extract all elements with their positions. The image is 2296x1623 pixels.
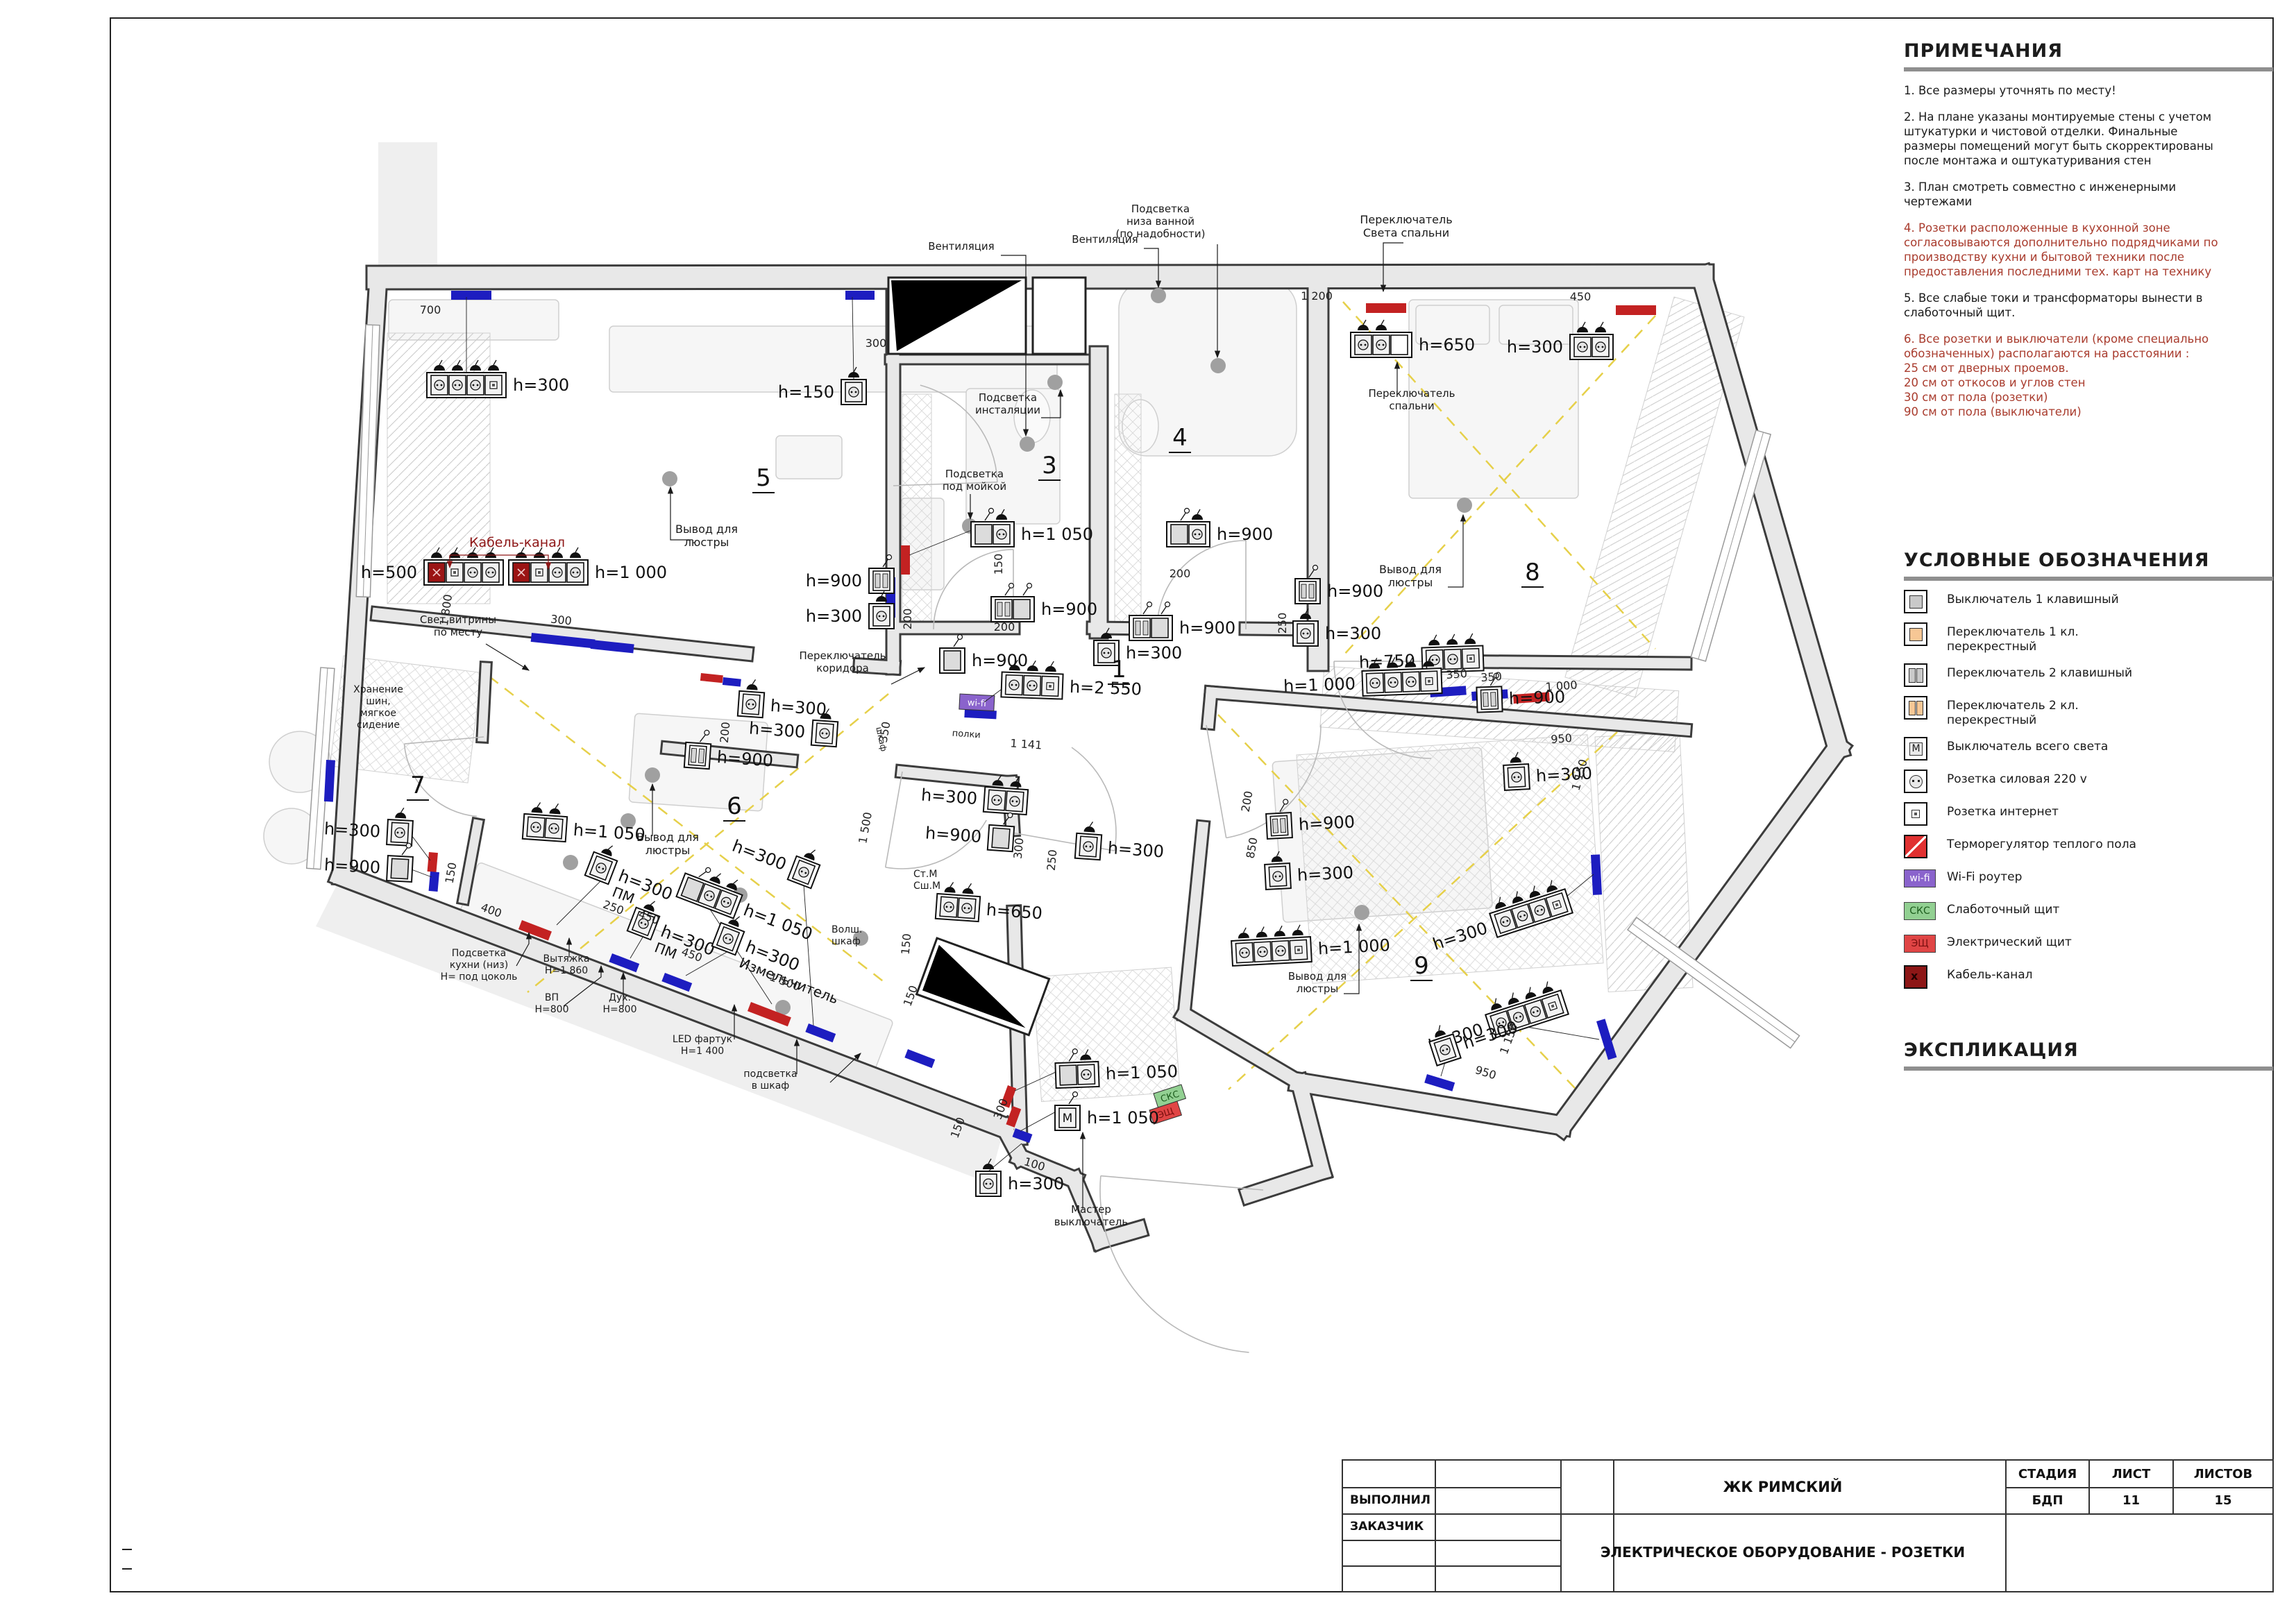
sheets-value: 15 [2174,1488,2272,1512]
customer-label: ЗАКАЗЧИК [1343,1515,1440,1538]
annotation: ВытяжкаН=1 860 [543,953,590,976]
dimension-label: 1 141 [1010,736,1043,751]
height-label: h=300 [1297,863,1353,885]
height-label: h=650 [1419,335,1475,355]
height-label: h=900 [1327,581,1383,601]
height-label: h=900 [716,747,774,771]
note-item: 4. Розетки расположенные в кухонной зоне… [1904,221,2273,279]
height-label: h=900 [1179,618,1235,638]
ceiling-outlet-dot [662,471,677,486]
legend-item: Переключатель 2 кл. перекрестный [1904,696,2273,728]
legend-item-label: Выключатель всего света [1947,737,2108,754]
height-label: h=300 [1126,643,1182,663]
explication-panel: ЭКСПЛИКАЦИЯ [1904,1039,2273,1071]
ceiling-outlet-dot [1047,375,1063,390]
height-label: h=300 [1325,624,1381,643]
svg-text:M: M [1063,1112,1073,1125]
explication-rule [1904,1067,2273,1071]
legend-item-label: Переключатель 2 кл. перекрестный [1947,696,2079,728]
svg-text:7: 7 [410,772,425,799]
socket-group: h=900 [991,584,1097,622]
note-item: 5. Все слабые токи и трансформаторы выне… [1904,291,2273,320]
height-label: h=300 [1507,337,1563,357]
socket-group: h=900 [806,555,894,594]
notes-panel: ПРИМЕЧАНИЯ 1. Все размеры уточнять по ме… [1904,40,2273,419]
svg-text:3: 3 [1042,452,1057,479]
exterior-zone [378,142,437,278]
legend-item: ЭЩЭлектрический щит [1904,933,2273,956]
exterior-zone [316,876,1004,1183]
sks-icon: СКС [1904,900,1927,924]
height-label: h=650 [986,900,1043,924]
power-strip [700,673,723,683]
annotation: Вентиляция [928,240,994,253]
dimension-label: 150 [899,933,914,955]
dimension-label: 450 [1570,290,1592,303]
cross1-icon [1904,622,1927,646]
dimension-label: 300 [550,612,572,627]
height-label: h=900 [323,855,380,877]
annotation: Вывод длялюстры [636,831,699,857]
title-block: ВЫПОЛНИЛ ЗАКАЗЧИК ЖК РИМСКИЙ ЭЛЕКТРИЧЕСК… [1342,1459,2274,1592]
esh-icon: ЭЩ [1904,933,1927,956]
height-label: h=900 [1298,812,1355,834]
sheet-label: ЛИСТ [2090,1461,2172,1487]
svg-text:6: 6 [727,792,742,820]
legend-item: СКССлаботочный щит [1904,900,2273,924]
cross2-icon [1904,696,1927,720]
ceiling-outlet-dot [645,767,660,783]
dimension-label: 150 [992,554,1005,575]
low-current-strip [845,291,875,300]
wifi-icon: wi-fi [1904,867,1927,891]
vent-shaft [1033,278,1086,354]
annotation: Подсветкапод мойкой [943,468,1006,493]
annotation: Кабель-канал [469,535,565,550]
height-label: h=1 050 [1087,1108,1159,1128]
annotation: Вывод длялюстры [675,522,738,549]
height-label: h=1 000 [595,563,667,582]
notes-title: ПРИМЕЧАНИЯ [1904,40,2273,62]
dimension-label: 950 [1474,1063,1498,1082]
legend-item: Выключатель 1 клавишный [1904,590,2273,613]
door-arc [1100,1176,1263,1353]
leader-line [1527,1027,1599,1039]
note-item: 6. Все розетки и выключатели (кроме спец… [1904,332,2273,419]
legend-item: wi-fiWi-Fi роутер [1904,867,2273,891]
legend-item-label: Слаботочный щит [1947,900,2059,917]
height-label: h=300 [806,606,862,626]
dimension-label: 200 [1170,567,1191,580]
svg-text:1: 1 [1111,656,1126,683]
wall-fill [1299,1082,1562,1125]
legend-item: Терморегулятор теплого пола [1904,835,2273,858]
vent-shaft [917,938,1049,1035]
height-label: h=500 [361,563,417,582]
dimension-label: 300 [1011,837,1027,859]
svg-text:8: 8 [1525,559,1540,586]
dimension-label: 1 200 [1301,289,1333,303]
wall-fill [1184,1014,1299,1082]
annotation: полки [952,729,981,741]
room-number: 5 [752,464,775,493]
dimension-label: 350 [1480,670,1503,684]
socket-group: h=1 050 [523,801,647,847]
ceiling-outlet-dot [1020,436,1035,452]
legend-item: Розетка интернет [1904,802,2273,826]
annotation: Волш.шкаф [832,924,862,947]
thermo-icon [1904,835,1927,858]
annotation: Подсветкаинсталяции [975,391,1040,416]
hatch-zone [1115,394,1141,623]
low-current-strip [1424,1074,1455,1091]
height-label: h=900 [1217,525,1273,544]
height-label: h=900 [972,651,1028,670]
legend-item-label: Розетка силовая 220 v [1947,770,2087,787]
labeled-box: wi-fi [959,694,995,711]
hatch-zone [902,394,931,623]
legend-item: MВыключатель всего света [1904,737,2273,760]
height-label: h=1 050 [1021,525,1093,544]
dimension-label: 150 [443,861,459,884]
room-number: 8 [1521,559,1544,587]
drawing-name: ЭЛЕКТРИЧЕСКОЕ ОБОРУДОВАНИЕ - РОЗЕТКИ [1562,1515,2004,1590]
legend-title: УСЛОВНЫЕ ОБОЗНАЧЕНИЯ [1904,550,2273,571]
annotation: LED фартукН=1 400 [673,1034,732,1057]
notes-list: 1. Все размеры уточнять по месту!2. На п… [1904,83,2273,419]
ceiling-outlet-dot [1151,288,1166,303]
legend-item-label: Розетка интернет [1947,802,2059,819]
power-strip [428,852,438,872]
power-strip [1366,303,1406,313]
low-current-strip [429,872,439,892]
dimension-label: 250 [1276,613,1289,634]
socket-group: h=300 [806,591,894,629]
furniture [776,436,842,479]
sw2-icon [1904,663,1927,687]
legend-item-label: Wi-Fi роутер [1947,867,2022,885]
legend-item: Переключатель 2 клавишный [1904,663,2273,687]
socket-group: h=300 [1075,821,1166,865]
height-label: h=300 [920,785,978,809]
height-label: h=150 [778,382,834,402]
socket-group: h=1 000 [509,547,667,585]
dimension-label: 1 500 [856,811,875,844]
annotation: Вывод длялюстры [1288,970,1347,995]
revision-dash [122,1549,132,1550]
legend-item-label: Переключатель 2 клавишный [1947,663,2132,681]
height-label: h=300 [513,375,569,395]
legend-list: Выключатель 1 клавишныйПереключатель 1 к… [1904,590,2273,989]
ceiling-outlet-dot [1210,358,1226,373]
height-label: h=1 000 [1317,935,1390,958]
legend-item-label: Переключатель 1 кл. перекрестный [1947,622,2079,654]
annotation: Ст.МСш.М [913,869,940,892]
height-label: h=300 [1008,1174,1064,1193]
wall-fill [1702,276,1838,748]
explication-title: ЭКСПЛИКАЦИЯ [1904,1039,2273,1061]
inet-icon [1904,802,1927,826]
wall-fill [482,668,486,737]
legend-item-label: Выключатель 1 клавишный [1947,590,2119,607]
height-label: h=300 [323,819,380,841]
ceiling-outlet-dot [1457,498,1472,513]
vent-shaft [888,278,1026,354]
power-strip [1616,305,1656,315]
revision-dash [122,1568,132,1570]
dimension-label: 200 [718,721,733,743]
legend-item: xКабель-канал [1904,965,2273,989]
ceiling-outlet-dot [563,855,578,870]
socket-group: h=650 [936,881,1045,926]
annotation: ПереключательСвета спальни [1360,213,1452,239]
socket-icon [1904,770,1927,793]
window [1691,430,1771,661]
dimension-label: 250 [1045,849,1060,871]
dimension-label: 300 [866,337,887,350]
height-label: h=1 050 [573,820,646,844]
svg-text:4: 4 [1172,424,1188,452]
annotation: Мастервыключатель [1054,1203,1128,1228]
ceiling-outlet-dot [1354,905,1369,920]
height-label: h=900 [806,571,862,590]
height-label: h=300 [770,696,827,720]
legend-item-label: Терморегулятор теплого пола [1947,835,2136,852]
low-current-strip [723,677,741,687]
dimension-label: 850 [1244,836,1260,859]
note-item: 2. На плане указаны монтируемые стены с … [1904,110,2273,168]
annotation: Вывод длялюстры [1379,563,1442,589]
stage-label: СТАДИЯ [2007,1461,2088,1487]
dimension-label: 700 [420,303,441,316]
annotation: подсветкав шкаф [743,1069,797,1091]
low-current-strip [451,291,491,300]
low-current-strip [904,1049,935,1068]
legend-rule [1904,577,2273,581]
height-label: h=900 [925,823,982,847]
svg-text:5: 5 [756,464,771,492]
legend-item-label: Электрический щит [1947,933,2072,950]
notes-rule [1904,67,2273,71]
height-label: h=900 [1041,600,1097,619]
annotation: Подсветкакухни (низ)Н= под цоколь [441,948,518,983]
stage-value: БДП [2007,1488,2088,1512]
performed-label: ВЫПОЛНИЛ [1343,1488,1440,1512]
height-label: h=1 050 [1105,1062,1178,1084]
dimension-label: 150 [901,984,920,1008]
dimension-label: 950 [1551,731,1573,746]
socket-group: h=900 [1167,509,1273,547]
dimension-label: 200 [901,609,914,630]
socket-group: h=300 [738,679,829,722]
dimension-label: 200 [1239,790,1256,813]
dimension-label: 200 [994,620,1015,634]
sheet-value: 11 [2090,1488,2172,1512]
annotation: Подсветканиза ванной(по надобности) [1116,203,1206,240]
allm-icon: M [1904,737,1927,760]
note-item: 3. План смотреть совместно с инженерными… [1904,180,2273,209]
legend-item: Розетка силовая 220 v [1904,770,2273,793]
socket-group: h=900 [1129,602,1235,641]
socket-group: h=300 [729,822,825,888]
legend-item: Переключатель 1 кл. перекрестный [1904,622,2273,654]
drawing-sheet: wi-fiСКСЭЩh=300h=500h=1 000h=150h=1 050h… [0,0,2296,1623]
note-item: 1. Все размеры уточнять по месту! [1904,83,2273,98]
legend-item-label: Кабель-канал [1947,965,2033,983]
height-label: h=2 550 [1069,677,1142,699]
power-strip [901,545,910,575]
dimension-label: 350 [877,720,893,743]
dimension-label: 1 000 [1545,678,1578,693]
cable-icon: x [1904,965,1927,989]
svg-text:9: 9 [1414,952,1429,980]
sheets-label: ЛИСТОВ [2174,1461,2272,1487]
dimension-label: 350 [1446,667,1468,681]
height-label: h=300 [1107,838,1165,862]
legend-panel: УСЛОВНЫЕ ОБОЗНАЧЕНИЯ Выключатель 1 клави… [1904,550,2273,989]
annotation: Хранениешин,мягкоесидение [353,684,403,731]
height-label: h=300 [748,718,806,742]
svg-text:wi-fi: wi-fi [967,698,986,709]
height-label: h=1 000 [1283,674,1356,696]
socket-group: h=300 [1293,609,1381,646]
sw1-icon [1904,590,1927,613]
project-name: ЖК РИМСКИЙ [1562,1461,2004,1513]
